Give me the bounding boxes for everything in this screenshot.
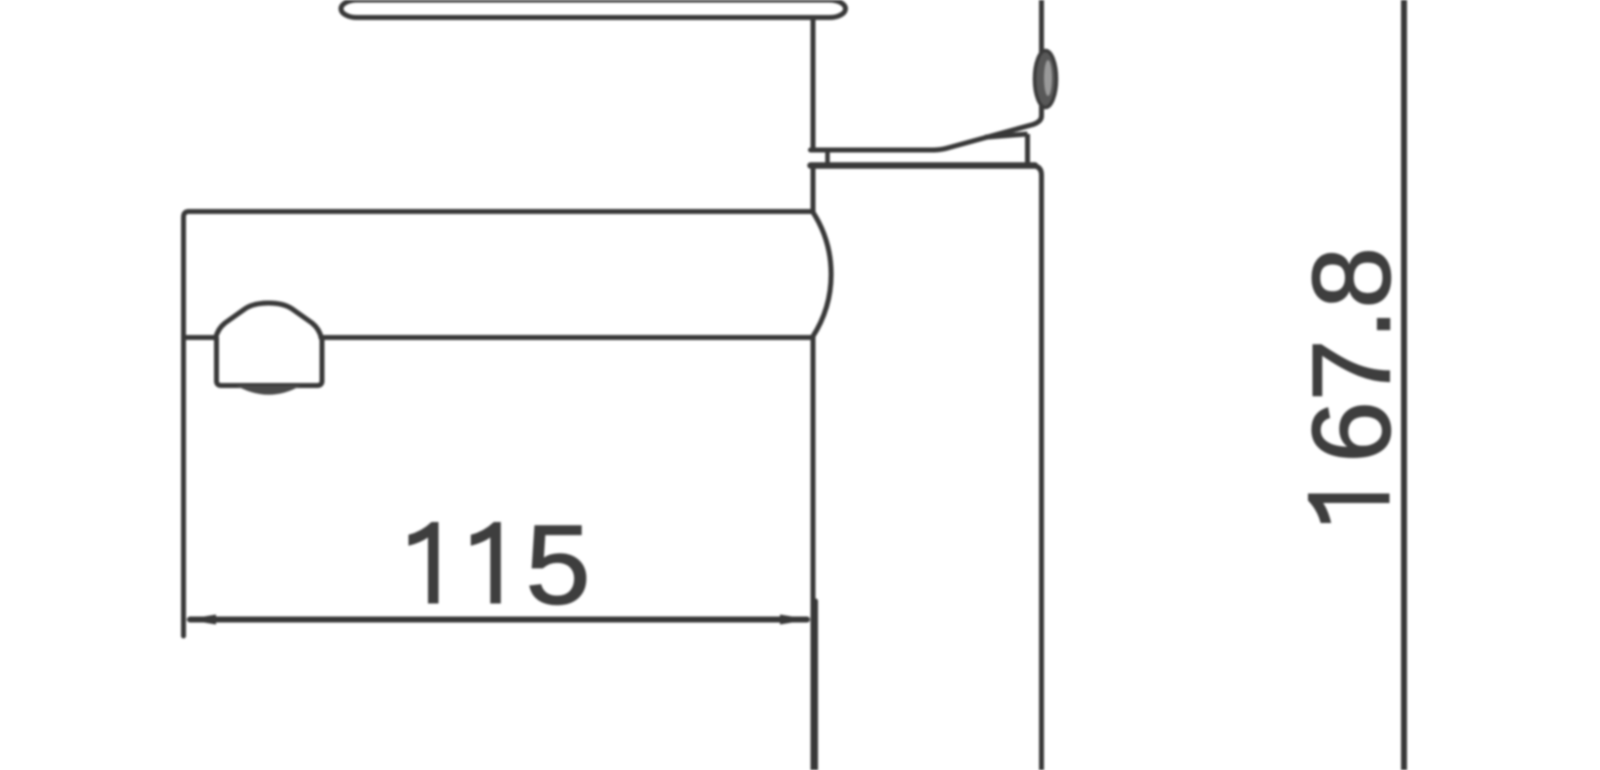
svg-text:5: 5 [526,503,591,628]
svg-text:67.8: 67.8 [1291,247,1414,463]
